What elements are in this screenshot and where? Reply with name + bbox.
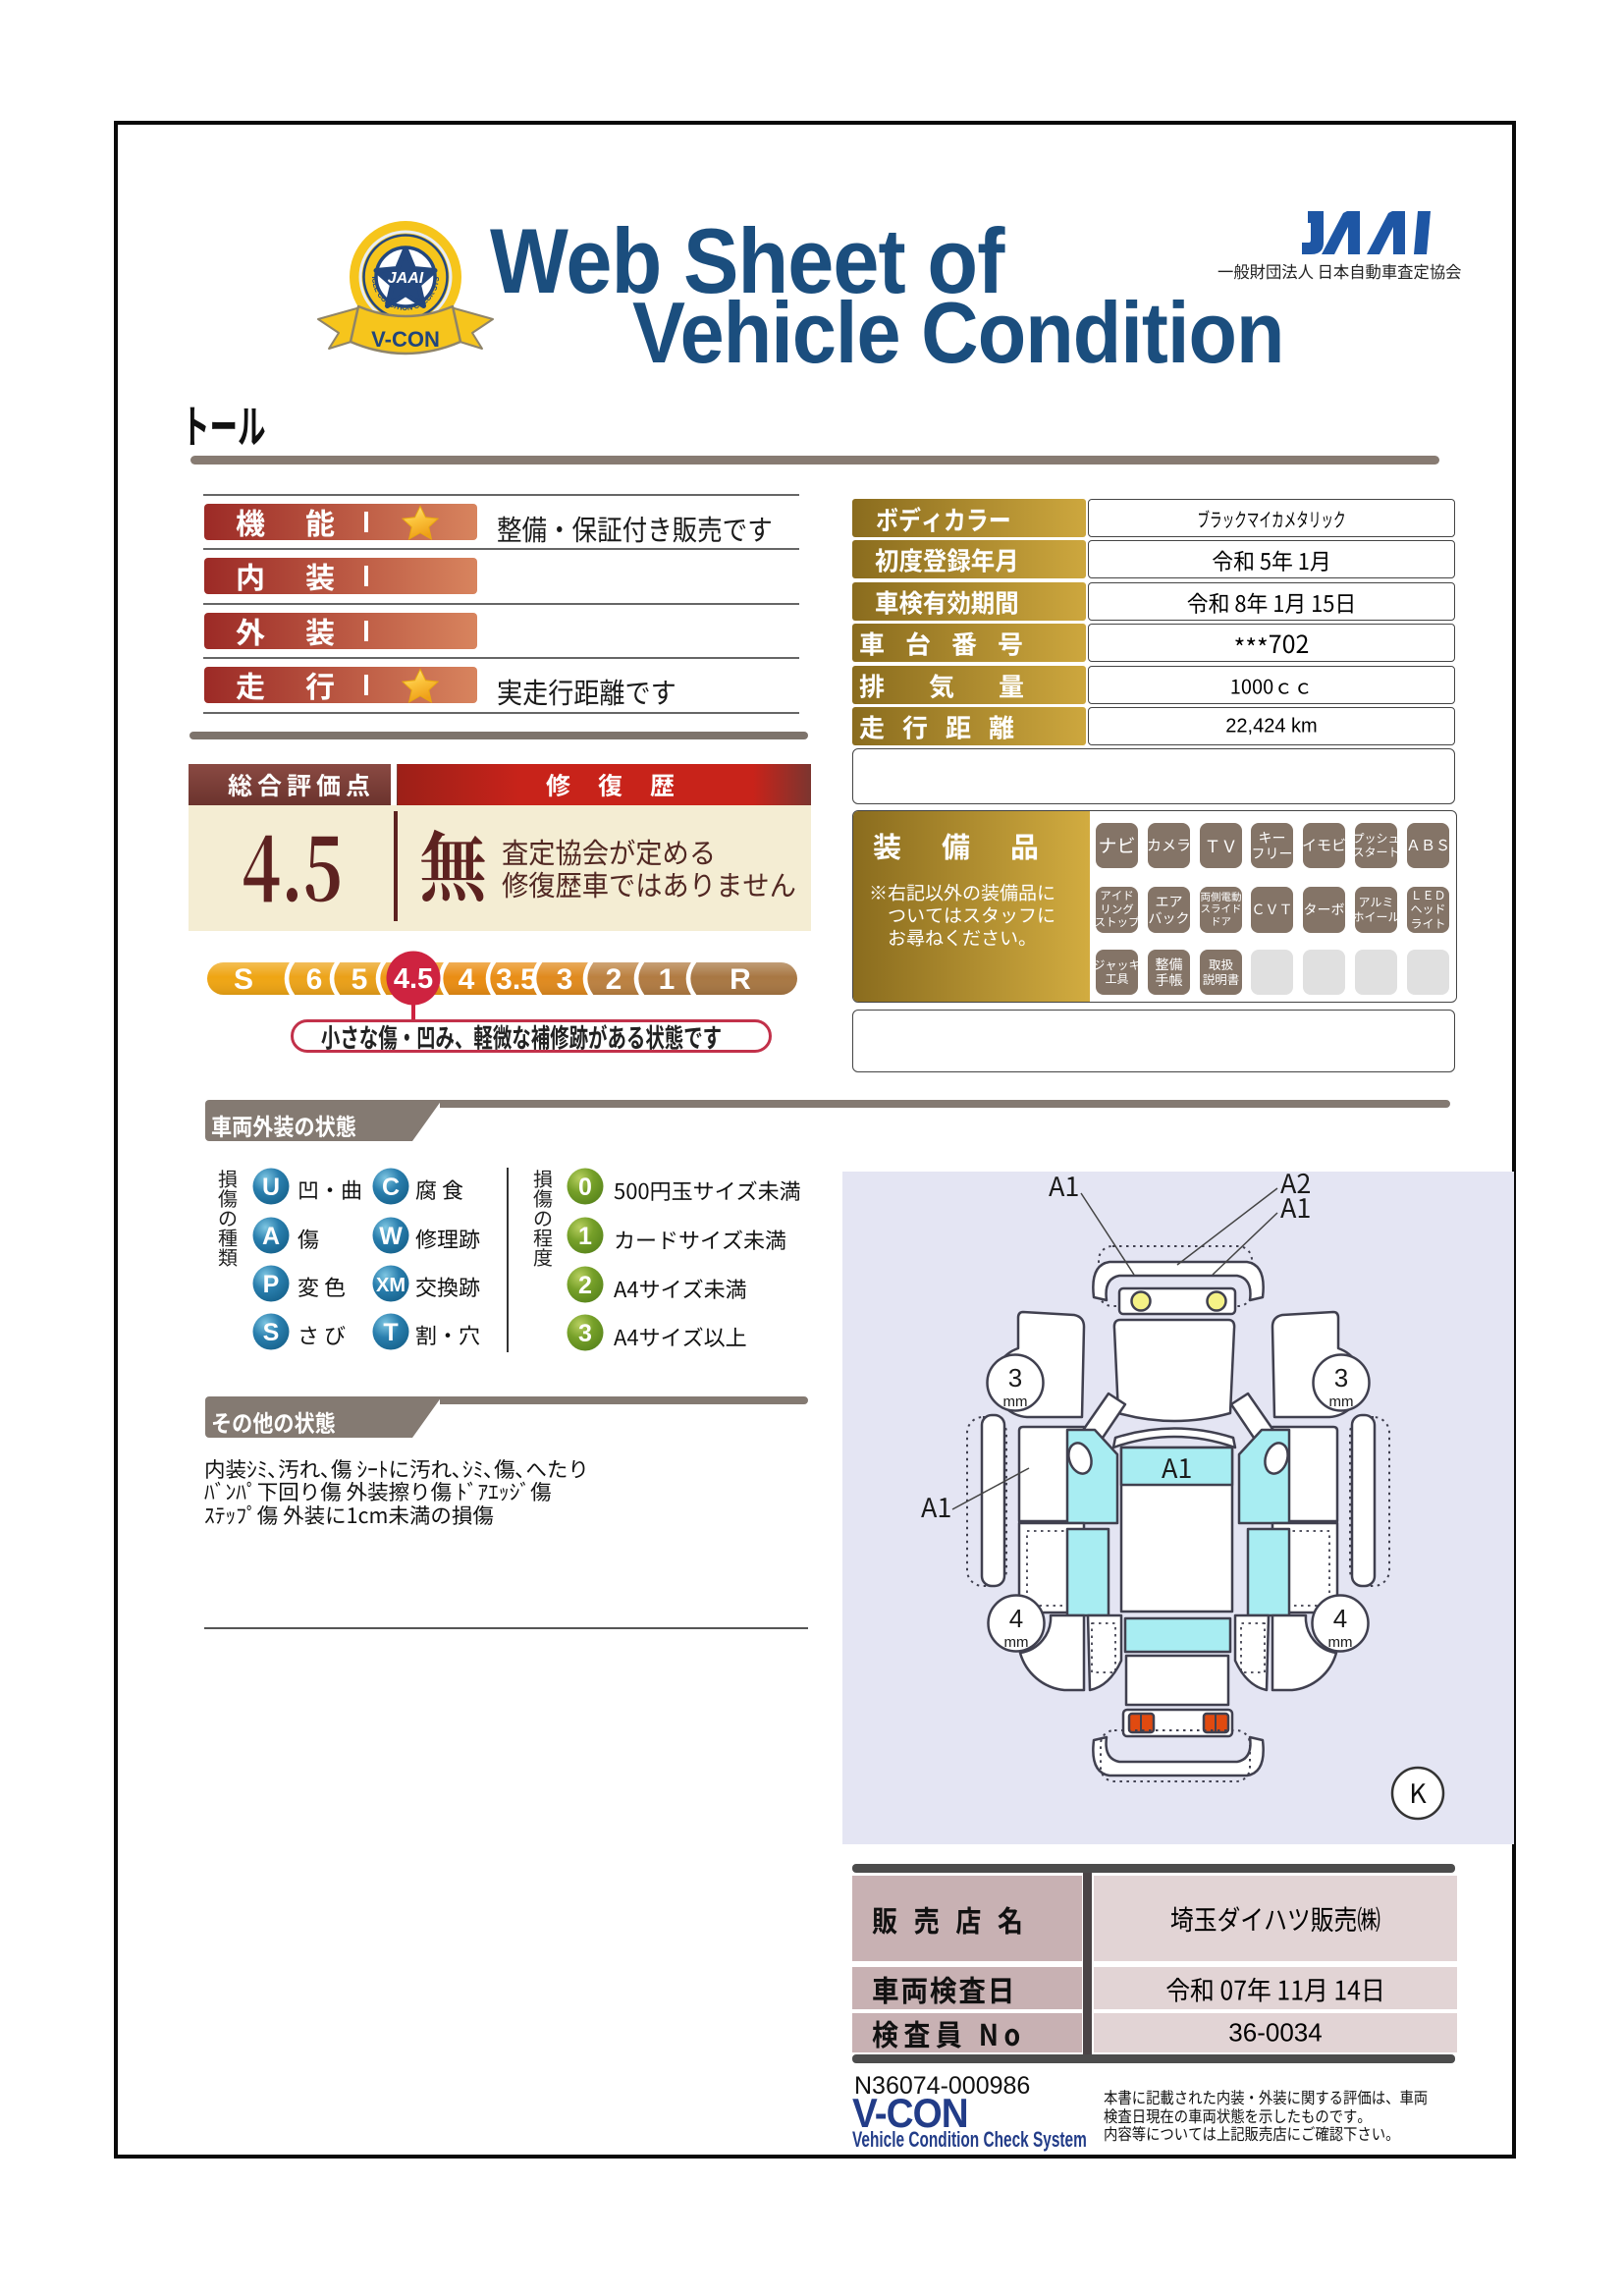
- svg-text:mm: mm: [1003, 1394, 1028, 1410]
- svg-text:5: 5: [352, 963, 368, 996]
- svg-text:3: 3: [1008, 1363, 1022, 1393]
- svg-text:mm: mm: [1329, 1394, 1354, 1410]
- svg-text:4: 4: [459, 963, 475, 996]
- svg-text:K: K: [1409, 1773, 1427, 1811]
- svg-text:mm: mm: [1328, 1634, 1353, 1651]
- svg-text:S: S: [263, 1319, 280, 1346]
- svg-text:2: 2: [606, 963, 622, 996]
- svg-text:V-CON: V-CON: [371, 327, 440, 352]
- svg-text:2: 2: [578, 1272, 592, 1299]
- svg-text:P: P: [263, 1271, 280, 1298]
- svg-text:3: 3: [578, 1320, 592, 1347]
- svg-text:1: 1: [659, 963, 676, 996]
- svg-text:W: W: [379, 1223, 403, 1250]
- svg-text:R: R: [730, 963, 751, 996]
- svg-text:1: 1: [578, 1223, 592, 1250]
- svg-text:XM: XM: [376, 1275, 406, 1296]
- svg-text:3: 3: [557, 963, 573, 996]
- svg-text:A1: A1: [1049, 1172, 1079, 1204]
- svg-text:A1: A1: [921, 1487, 951, 1525]
- svg-text:T: T: [383, 1319, 398, 1346]
- svg-text:JAAI: JAAI: [388, 270, 424, 287]
- svg-text:U: U: [262, 1174, 280, 1201]
- svg-text:A: A: [262, 1223, 280, 1250]
- svg-text:A1: A1: [1280, 1187, 1311, 1226]
- svg-text:A1: A1: [1162, 1448, 1192, 1486]
- svg-text:S: S: [234, 963, 253, 996]
- svg-text:3.5: 3.5: [496, 963, 537, 996]
- svg-text:3: 3: [1334, 1363, 1348, 1393]
- svg-text:C: C: [382, 1174, 400, 1201]
- svg-text:4: 4: [1333, 1604, 1347, 1633]
- svg-text:4: 4: [1009, 1604, 1023, 1633]
- svg-text:6: 6: [306, 963, 323, 996]
- svg-text:0: 0: [578, 1174, 592, 1201]
- svg-text:4.5: 4.5: [394, 963, 433, 995]
- svg-text:mm: mm: [1004, 1634, 1029, 1651]
